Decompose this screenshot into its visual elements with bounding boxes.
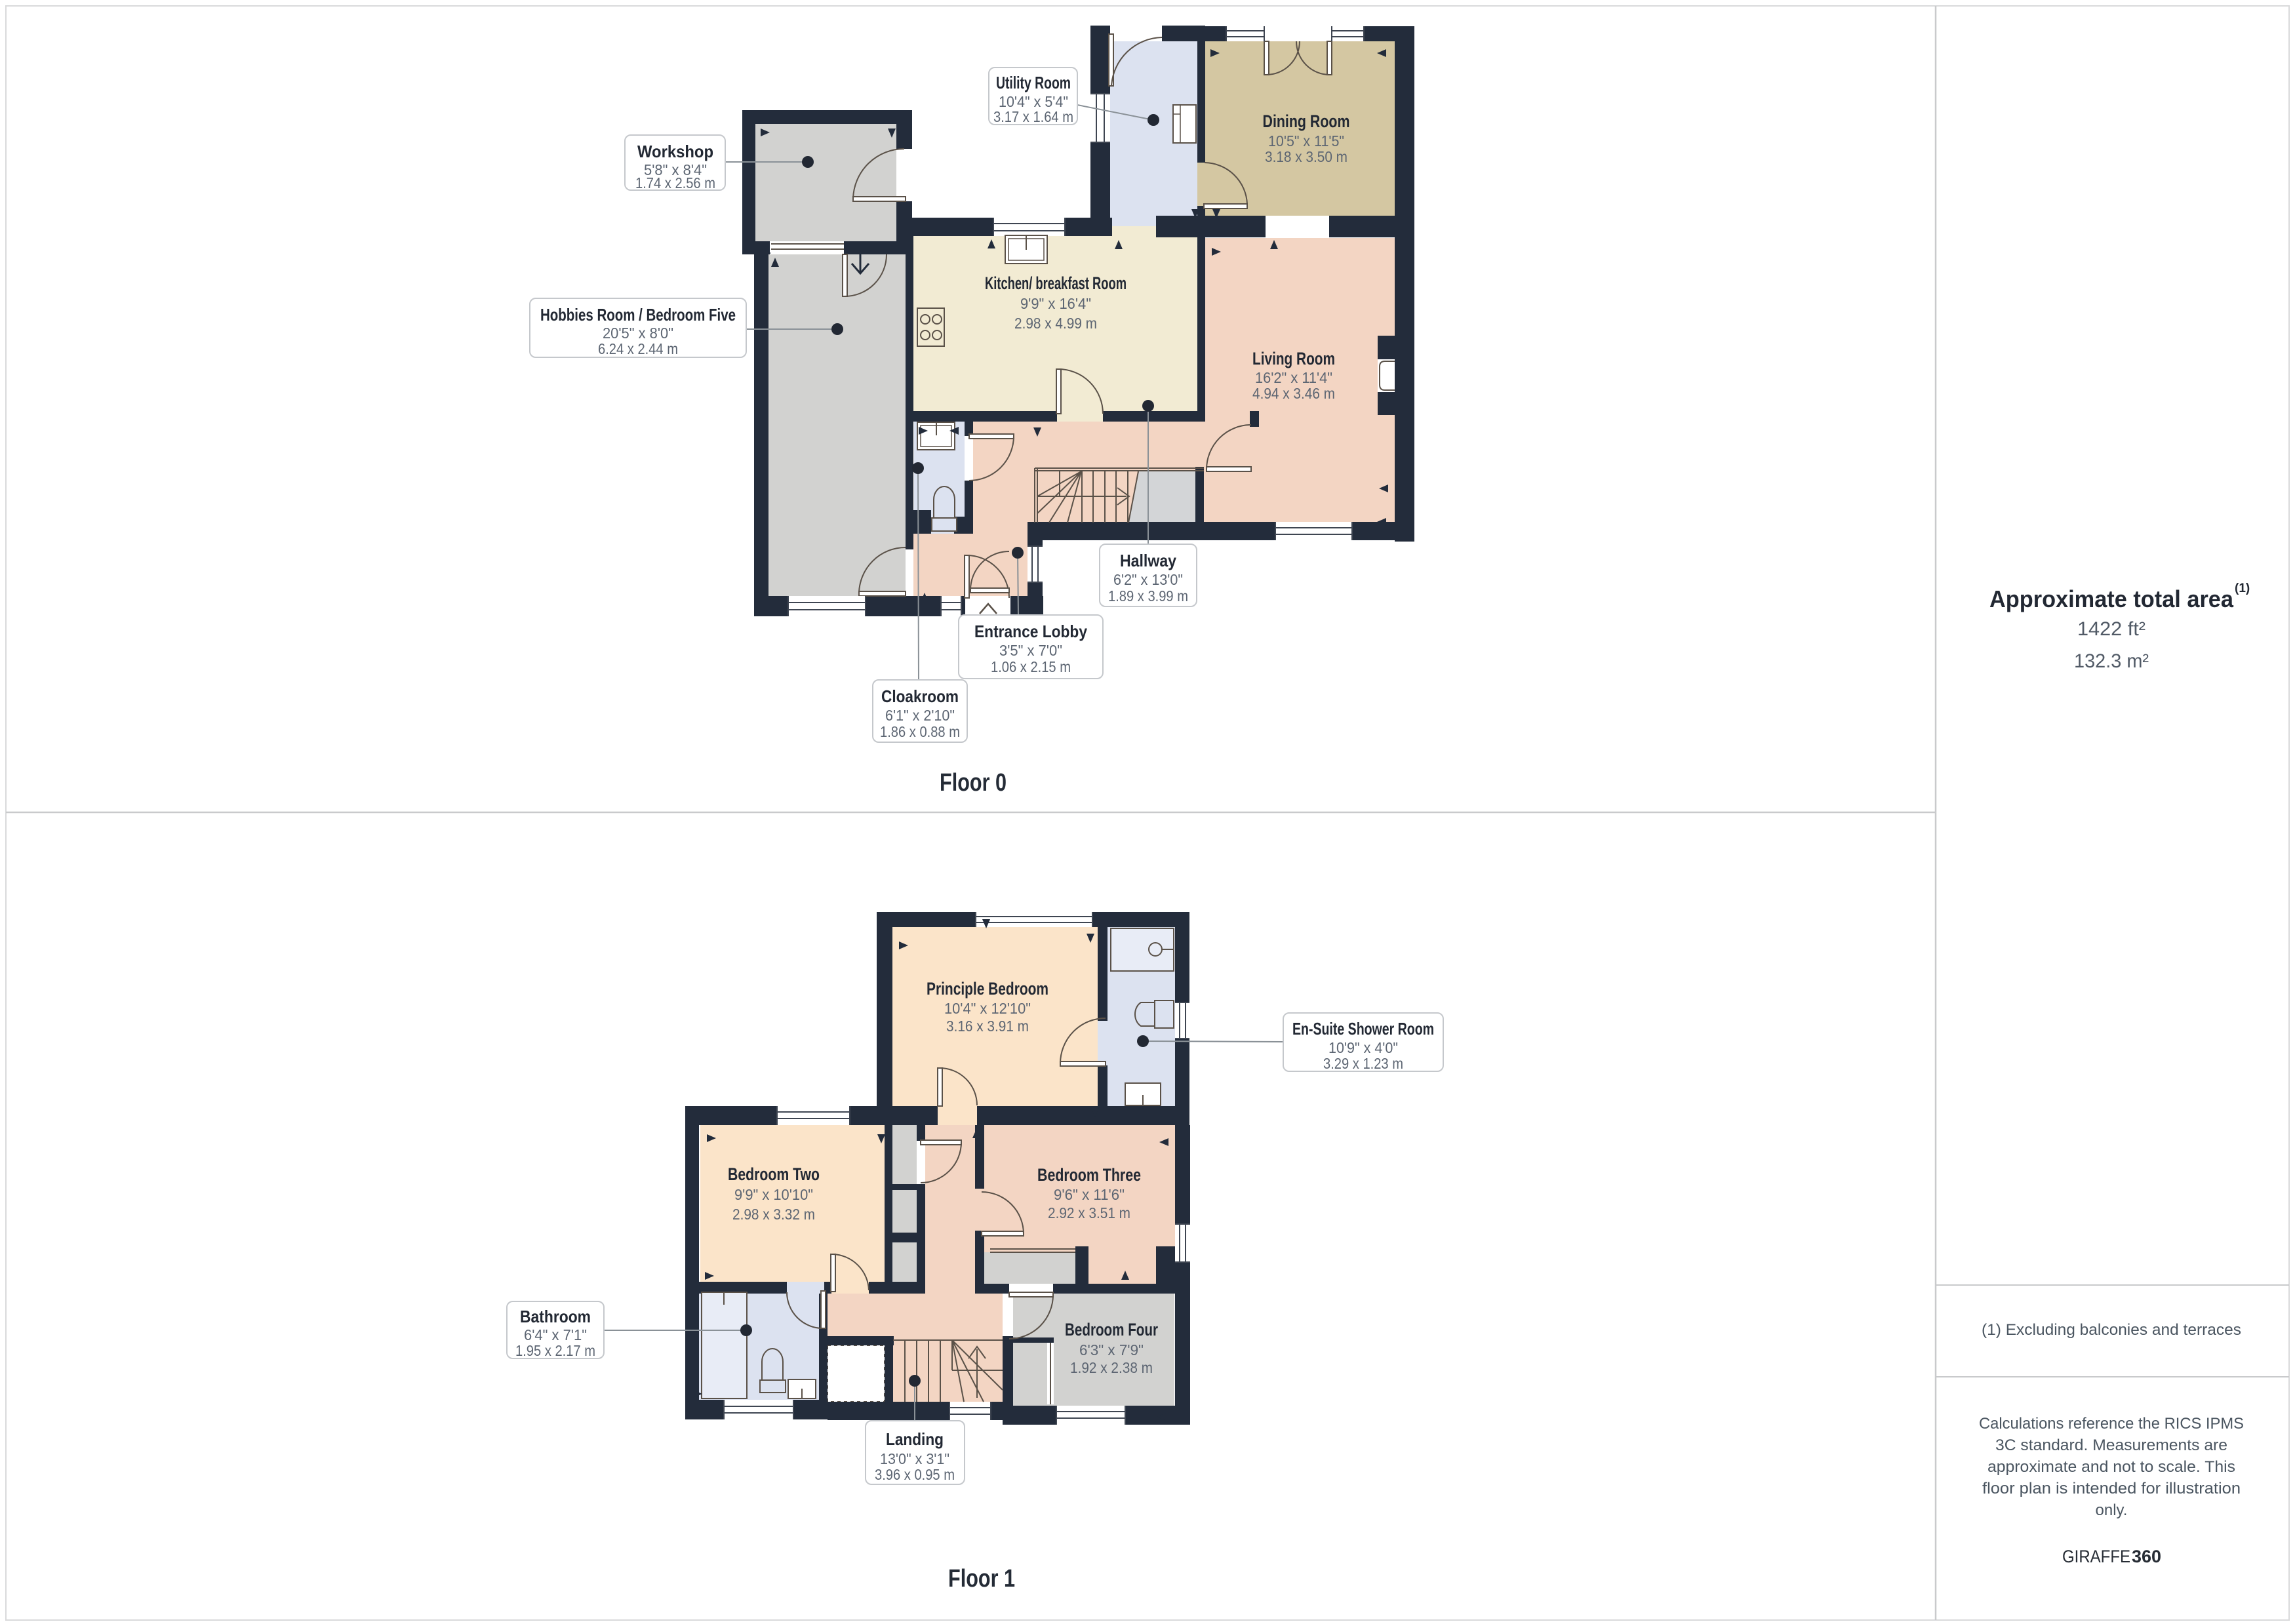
svg-text:Entrance Lobby: Entrance Lobby (974, 622, 1087, 641)
svg-text:Floor 1: Floor 1 (948, 1565, 1015, 1593)
svg-text:Approximate total area: Approximate total area (1989, 585, 2234, 612)
svg-text:Cloakroom: Cloakroom (881, 686, 959, 706)
svg-text:Living Room: Living Room (1252, 349, 1335, 368)
svg-text:Hallway: Hallway (1120, 551, 1176, 570)
svg-text:1422 ft²: 1422 ft² (2077, 618, 2145, 640)
svg-text:floor plan is intended for ill: floor plan is intended for illustration (1982, 1480, 2241, 1497)
svg-text:13'0" x 3'1": 13'0" x 3'1" (880, 1450, 949, 1467)
svg-text:9'9" x 10'10": 9'9" x 10'10" (734, 1186, 813, 1203)
svg-text:16'2" x 11'4": 16'2" x 11'4" (1255, 369, 1332, 386)
svg-text:10'4" x 12'10": 10'4" x 12'10" (944, 1000, 1031, 1017)
svg-text:6.24 x 2.44 m: 6.24 x 2.44 m (598, 340, 678, 357)
svg-text:Bedroom Two: Bedroom Two (728, 1164, 820, 1184)
svg-text:GIRAFFE: GIRAFFE (2062, 1547, 2130, 1566)
svg-text:approximate and not to scale.: approximate and not to scale. This (1987, 1458, 2235, 1476)
svg-text:Calculations reference the RIC: Calculations reference the RICS IPMS (1979, 1415, 2244, 1433)
svg-text:6'2" x 13'0": 6'2" x 13'0" (1113, 571, 1183, 588)
svg-text:3.29 x 1.23 m: 3.29 x 1.23 m (1323, 1055, 1403, 1072)
svg-text:1.86 x 0.88 m: 1.86 x 0.88 m (880, 723, 960, 740)
svg-text:6'4" x 7'1": 6'4" x 7'1" (524, 1326, 587, 1343)
svg-text:2.92 x 3.51 m: 2.92 x 3.51 m (1048, 1204, 1130, 1221)
svg-text:Landing: Landing (886, 1429, 944, 1449)
svg-text:1.74 x 2.56 m: 1.74 x 2.56 m (635, 174, 715, 191)
svg-text:20'5" x 8'0": 20'5" x 8'0" (603, 325, 673, 342)
svg-text:4.94 x 3.46 m: 4.94 x 3.46 m (1252, 385, 1335, 402)
svg-text:only.: only. (2096, 1501, 2128, 1519)
svg-text:1.92 x 2.38 m: 1.92 x 2.38 m (1070, 1359, 1153, 1376)
svg-text:Floor 0: Floor 0 (940, 769, 1007, 797)
svg-text:2.98 x 4.99 m: 2.98 x 4.99 m (1014, 315, 1097, 332)
svg-text:3C standard. Measurements are: 3C standard. Measurements are (1995, 1436, 2227, 1454)
svg-text:Bedroom Three: Bedroom Three (1037, 1165, 1141, 1185)
svg-text:Bathroom: Bathroom (520, 1307, 591, 1326)
svg-text:1.95 x 2.17 m: 1.95 x 2.17 m (515, 1342, 595, 1359)
svg-text:2.98 x 3.32 m: 2.98 x 3.32 m (732, 1206, 815, 1223)
svg-text:3.17 x 1.64 m: 3.17 x 1.64 m (993, 108, 1073, 125)
svg-text:360: 360 (2132, 1547, 2161, 1566)
svg-text:132.3 m²: 132.3 m² (2074, 650, 2149, 672)
svg-text:Dining Room: Dining Room (1263, 111, 1350, 131)
svg-text:1.89 x 3.99 m: 1.89 x 3.99 m (1108, 587, 1188, 604)
svg-text:9'6" x 11'6": 9'6" x 11'6" (1054, 1186, 1125, 1203)
svg-text:10'5" x 11'5": 10'5" x 11'5" (1268, 132, 1344, 149)
svg-text:6'3" x 7'9": 6'3" x 7'9" (1079, 1341, 1144, 1358)
svg-text:1.06 x 2.15 m: 1.06 x 2.15 m (991, 658, 1071, 675)
svg-text:(1) Excluding balconies and te: (1) Excluding balconies and terraces (1982, 1321, 2241, 1339)
svg-text:10'9" x 4'0": 10'9" x 4'0" (1328, 1039, 1398, 1056)
svg-text:3.18 x 3.50 m: 3.18 x 3.50 m (1265, 148, 1347, 165)
svg-text:3.16 x 3.91 m: 3.16 x 3.91 m (946, 1018, 1029, 1035)
svg-text:3.96 x 0.95 m: 3.96 x 0.95 m (875, 1466, 955, 1483)
svg-text:Bedroom Four: Bedroom Four (1065, 1320, 1158, 1339)
svg-text:Utility Room: Utility Room (996, 73, 1071, 92)
svg-text:6'1" x 2'10": 6'1" x 2'10" (885, 707, 955, 724)
svg-text:3'5" x 7'0": 3'5" x 7'0" (999, 642, 1062, 659)
svg-text:Hobbies Room / Bedroom Five: Hobbies Room / Bedroom Five (540, 305, 736, 325)
svg-text:(1): (1) (2235, 582, 2250, 595)
svg-text:Principle Bedroom: Principle Bedroom (927, 979, 1048, 999)
svg-text:Workshop: Workshop (637, 142, 713, 161)
svg-text:Kitchen/ breakfast Room: Kitchen/ breakfast Room (985, 273, 1127, 293)
svg-text:En-Suite Shower Room: En-Suite Shower Room (1292, 1019, 1434, 1039)
svg-text:9'9" x 16'4": 9'9" x 16'4" (1020, 295, 1091, 312)
